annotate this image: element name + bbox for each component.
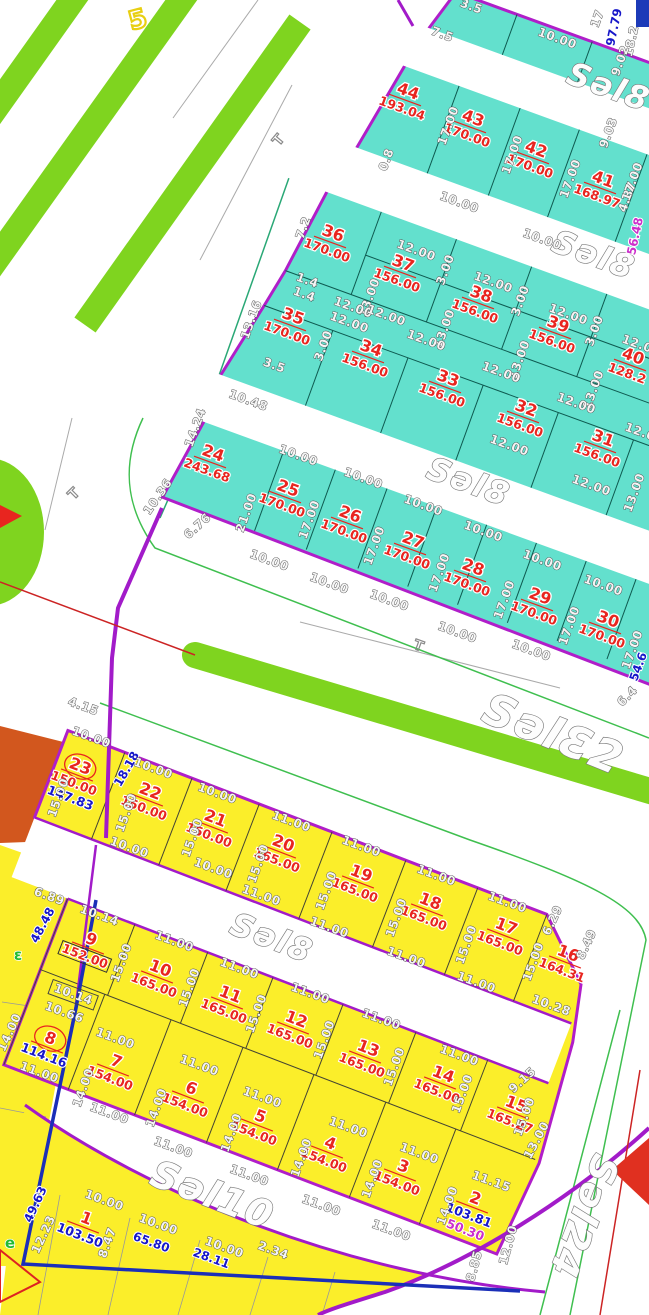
dimension-label: e [5, 1234, 15, 1252]
map-svg: Səl8Səl8Səl8SəlƐ2Səl8Səl10Səl24 44193.04… [0, 0, 649, 1315]
dimension-label: ε [14, 946, 22, 964]
cadastral-map-canvas: Səl8Səl8Səl8SəlƐ2Səl8Səl10Səl24 44193.04… [0, 0, 649, 1315]
blue-marker [636, 0, 649, 27]
